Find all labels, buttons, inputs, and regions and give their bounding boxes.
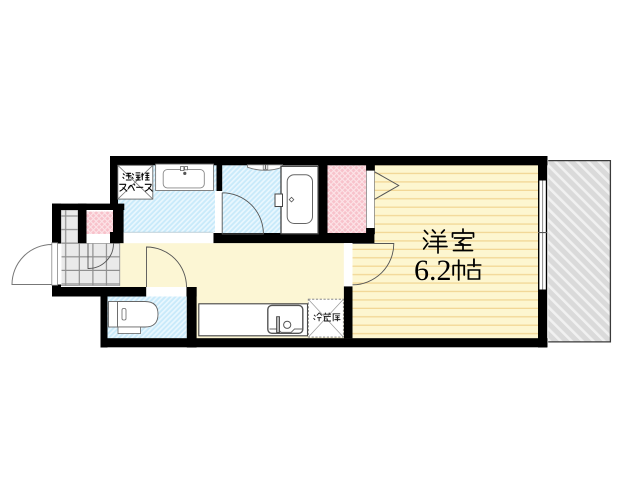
svg-text:6.2: 6.2: [414, 254, 452, 287]
